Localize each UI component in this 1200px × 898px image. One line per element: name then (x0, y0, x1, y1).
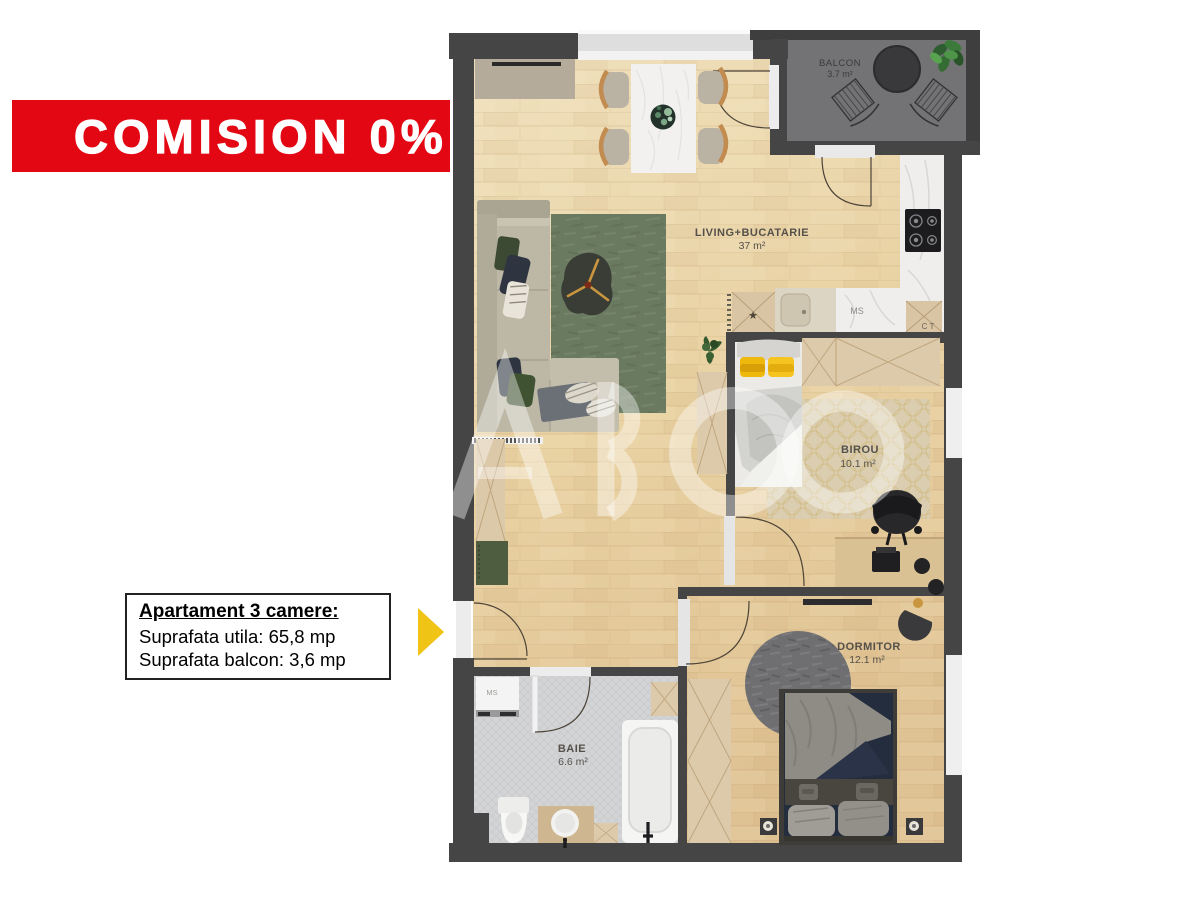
svg-text:DORMITOR: DORMITOR (837, 641, 901, 653)
svg-text:BAIE: BAIE (558, 743, 586, 755)
svg-text:37 m²: 37 m² (739, 240, 766, 252)
svg-text:MS: MS (486, 688, 497, 697)
svg-text:3.7 m²: 3.7 m² (827, 69, 853, 79)
svg-text:BIROU: BIROU (841, 444, 879, 456)
svg-text:LIVING+BUCATARIE: LIVING+BUCATARIE (695, 227, 809, 239)
svg-text:C T: C T (922, 322, 935, 331)
svg-text:6.6 m²: 6.6 m² (558, 756, 588, 768)
svg-text:10.1 m²: 10.1 m² (840, 458, 876, 470)
svg-text:★: ★ (748, 310, 758, 322)
svg-text:MS: MS (850, 306, 864, 316)
svg-text:BALCON: BALCON (819, 58, 861, 69)
svg-text:12.1 m²: 12.1 m² (849, 654, 885, 666)
